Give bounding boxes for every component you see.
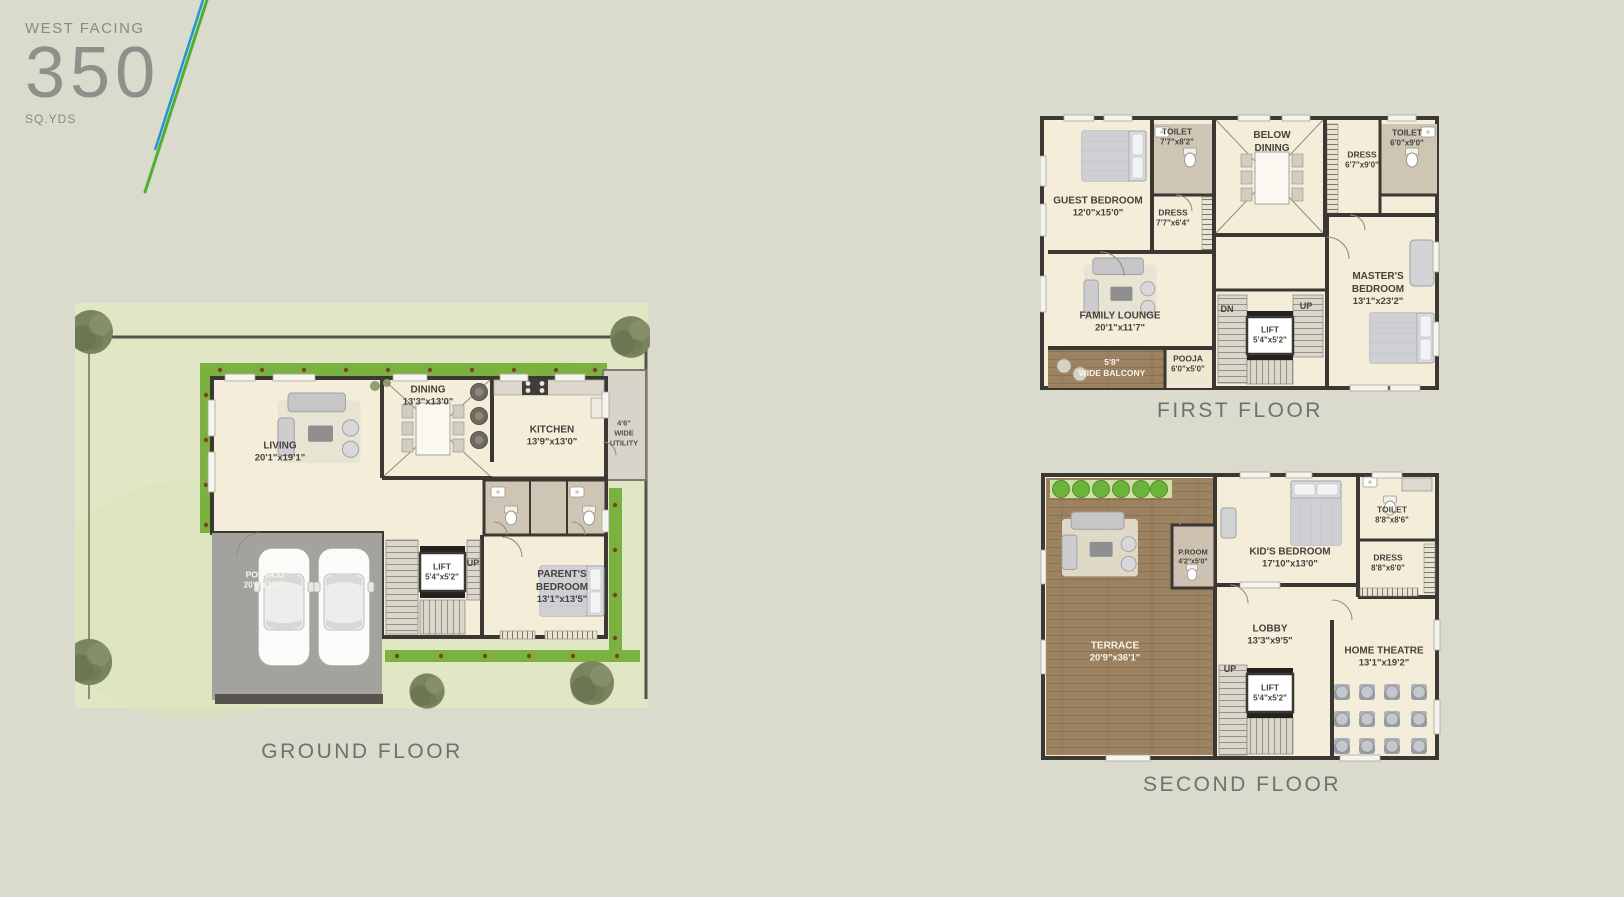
label-parents-bedroom: PARENT'S BEDROOM 13'1"x13'5" xyxy=(536,568,588,606)
label-dress-second: DRESS 8'8"x6'0" xyxy=(1371,552,1405,573)
theatre-name: HOME THEATRE xyxy=(1344,644,1423,657)
portico-dim: 20'9"x20'7" xyxy=(244,580,287,590)
kitchen-dim: 13'9"x13'0" xyxy=(527,436,578,448)
second-floor-plan: TERRACE 20'9"x36'1" P.ROOM 4'2"x5'0" KID… xyxy=(1040,460,1442,800)
p-room-dim: 4'2"x5'0" xyxy=(1178,557,1207,566)
master-line1: MASTER'S xyxy=(1352,270,1404,283)
ground-floor-drawing xyxy=(75,300,650,770)
portico-name: PORTICO xyxy=(244,569,287,580)
dining-name: DINING xyxy=(403,383,454,396)
kids-name: KID'S BEDROOM xyxy=(1249,545,1330,558)
balcony-name: WIDE BALCONY xyxy=(1079,368,1146,379)
pooja-name: POOJA xyxy=(1171,353,1205,364)
label-living: LIVING 20'1"x19'1" xyxy=(255,439,306,464)
label-toilet-second: TOILET 8'8"x8'6" xyxy=(1375,504,1409,525)
dress-a-name: DRESS xyxy=(1156,207,1190,218)
label-guest-bedroom: GUEST BEDROOM 12'0"x15'0" xyxy=(1053,194,1142,219)
kids-dim: 17'10"x13'0" xyxy=(1249,558,1330,570)
floorplan-sheet: WEST FACING 350 SQ.YDS xyxy=(0,0,1624,897)
lift-dim: 5'4"x5'2" xyxy=(425,572,459,582)
lounge-name: FAMILY LOUNGE xyxy=(1079,309,1160,322)
label-dress-a: DRESS 7'7"x6'4" xyxy=(1156,207,1190,228)
label-dining: DINING 13'3"x13'0" xyxy=(403,383,454,408)
lobby-name: LOBBY xyxy=(1247,622,1292,635)
label-kids-bedroom: KID'S BEDROOM 17'10"x13'0" xyxy=(1249,545,1330,570)
label-up-first: UP xyxy=(1300,301,1313,311)
lounge-dim: 20'1"x11'7" xyxy=(1079,322,1160,334)
label-lift-ground: LIFT 5'4"x5'2" xyxy=(425,561,459,582)
toilet-block xyxy=(484,480,606,535)
label-dn-first: DN xyxy=(1221,304,1234,314)
dress-a-dim: 7'7"x6'4" xyxy=(1156,218,1190,228)
dining-dim: 13'3"x13'0" xyxy=(403,396,454,408)
brand-block: WEST FACING 350 SQ.YDS xyxy=(25,20,160,126)
parents-dim: 13'1"x13'5" xyxy=(536,594,588,606)
master-dim: 13'1"x23'2" xyxy=(1352,296,1404,308)
parents-line2: BEDROOM xyxy=(536,581,588,594)
label-pooja: POOJA 6'0"x5'0" xyxy=(1171,353,1205,374)
terrace-area xyxy=(1046,478,1213,755)
toilet-second-dim: 8'8"x8'6" xyxy=(1375,515,1409,525)
label-below-dining: BELOW DINING xyxy=(1253,129,1290,155)
first-floor-title: FIRST FLOOR xyxy=(1157,399,1323,423)
label-balcony: 5'8" WIDE BALCONY xyxy=(1079,357,1146,379)
parents-line1: PARENT'S xyxy=(536,568,588,581)
label-terrace: TERRACE 20'9"x36'1" xyxy=(1090,639,1141,664)
dress-second-name: DRESS xyxy=(1371,552,1405,563)
utility-line2: WIDE xyxy=(610,428,638,438)
label-toilet-a: TOILET 7'7"x8'2" xyxy=(1160,126,1194,147)
lift-first-dim: 5'4"x5'2" xyxy=(1253,335,1287,345)
toilet-b-name: TOILET xyxy=(1390,127,1424,138)
below-dining-line2: DINING xyxy=(1253,142,1290,155)
label-kitchen: KITCHEN 13'9"x13'0" xyxy=(527,423,578,448)
ground-floor-title: GROUND FLOOR xyxy=(261,740,463,764)
label-toilet-b: TOILET 6'0"x9'0" xyxy=(1390,127,1424,148)
dress-b-dim: 6'7"x9'0" xyxy=(1345,160,1379,170)
balcony-dim: 5'8" xyxy=(1079,357,1146,368)
living-dim: 20'1"x19'1" xyxy=(255,452,306,464)
living-name: LIVING xyxy=(255,439,306,452)
second-floor-title: SECOND FLOOR xyxy=(1143,773,1341,797)
first-floor-plan: GUEST BEDROOM 12'0"x15'0" TOILET 7'7"x8'… xyxy=(1040,112,1442,422)
area-value: 350 xyxy=(25,37,160,110)
label-p-room: P.ROOM 4'2"x5'0" xyxy=(1178,548,1207,567)
toilet-a-name: TOILET xyxy=(1160,126,1194,137)
toilet-a-dim: 7'7"x8'2" xyxy=(1160,137,1194,147)
label-utility: 4'6" WIDE UTILITY xyxy=(610,418,638,447)
label-up-second: UP xyxy=(1224,664,1237,674)
label-dress-b: DRESS 6'7"x9'0" xyxy=(1345,149,1379,170)
kitchen-name: KITCHEN xyxy=(527,423,578,436)
label-home-theatre: HOME THEATRE 13'1"x19'2" xyxy=(1344,644,1423,669)
utility-line3: UTILITY xyxy=(610,438,638,448)
master-line2: BEDROOM xyxy=(1352,283,1404,296)
pooja-dim: 6'0"x5'0" xyxy=(1171,364,1205,374)
guest-name: GUEST BEDROOM xyxy=(1053,194,1142,207)
label-portico: PORTICO 20'9"x20'7" xyxy=(244,569,287,590)
lobby-dim: 13'3"x9'5" xyxy=(1247,635,1292,647)
ground-floor-plan: LIVING 20'1"x19'1" DINING 13'3"x13'0" KI… xyxy=(75,300,650,770)
lift-first-name: LIFT xyxy=(1253,324,1287,335)
area-unit: SQ.YDS xyxy=(25,112,160,126)
dress-b-name: DRESS xyxy=(1345,149,1379,160)
lift-name: LIFT xyxy=(425,561,459,572)
below-dining-line1: BELOW xyxy=(1253,129,1290,142)
label-lift-second: LIFT 5'4"x5'2" xyxy=(1253,682,1287,703)
lift-second-dim: 5'4"x5'2" xyxy=(1253,693,1287,703)
terrace-name: TERRACE xyxy=(1090,639,1141,652)
dress-second-dim: 8'8"x6'0" xyxy=(1371,563,1405,573)
toilet-second-name: TOILET xyxy=(1375,504,1409,515)
lift-second-name: LIFT xyxy=(1253,682,1287,693)
label-up-ground: UP xyxy=(467,558,480,568)
toilet-b-dim: 6'0"x9'0" xyxy=(1390,138,1424,148)
p-room-name: P.ROOM xyxy=(1178,548,1207,558)
label-masters-bedroom: MASTER'S BEDROOM 13'1"x23'2" xyxy=(1352,270,1404,308)
theatre-dim: 13'1"x19'2" xyxy=(1344,657,1423,669)
utility-line1: 4'6" xyxy=(610,418,638,428)
label-lift-first: LIFT 5'4"x5'2" xyxy=(1253,324,1287,345)
terrace-dim: 20'9"x36'1" xyxy=(1090,652,1141,664)
guest-dim: 12'0"x15'0" xyxy=(1053,207,1142,219)
label-lobby: LOBBY 13'3"x9'5" xyxy=(1247,622,1292,647)
label-family-lounge: FAMILY LOUNGE 20'1"x11'7" xyxy=(1079,309,1160,334)
